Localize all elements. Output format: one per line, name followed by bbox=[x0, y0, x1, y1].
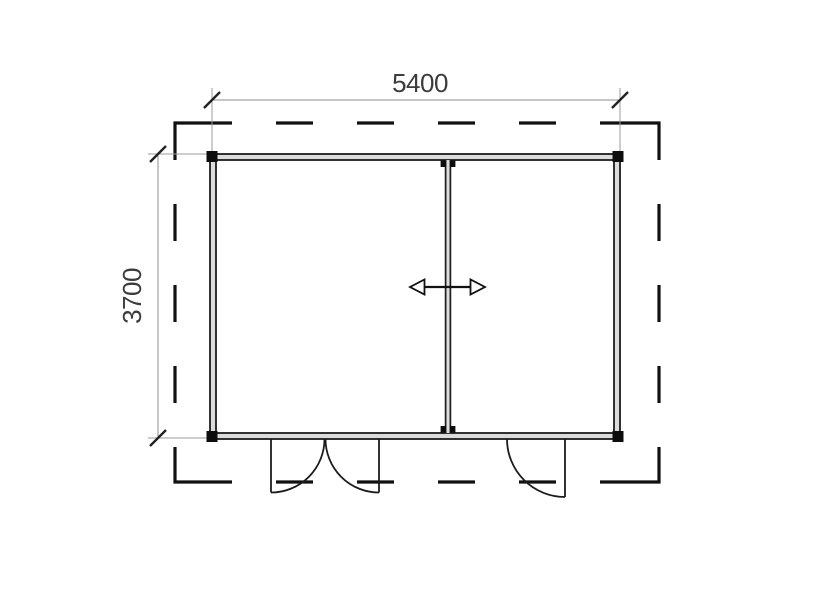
partition-post-bottom-right bbox=[450, 426, 456, 433]
corner-post-bottom-right bbox=[613, 431, 624, 442]
single-door-swing bbox=[507, 439, 565, 497]
partition-post-bottom-left bbox=[441, 426, 447, 433]
corner-post-bottom-left bbox=[207, 431, 218, 442]
arrow-head-left bbox=[410, 280, 425, 295]
wall-band-fill bbox=[210, 154, 620, 439]
corner-post-top-right bbox=[613, 151, 624, 162]
wall-outer-line bbox=[210, 154, 620, 439]
roof-outline-corner-bottom-right bbox=[602, 448, 659, 482]
wall-inner-line bbox=[216, 160, 614, 433]
roof-overhang-outline bbox=[175, 123, 659, 482]
dimension-depth: 3700 bbox=[117, 146, 210, 446]
door-swing-arc-right bbox=[326, 439, 380, 493]
roof-outline-corner-bottom-left bbox=[175, 450, 232, 482]
floor-plan-drawing: 5400 3700 bbox=[0, 0, 828, 614]
double-door-swing bbox=[271, 439, 379, 493]
partition-wall bbox=[441, 160, 456, 433]
dimension-width-label: 5400 bbox=[392, 68, 448, 98]
exterior-walls bbox=[207, 151, 624, 442]
partition-post-top-right bbox=[450, 161, 456, 168]
corner-post-top-left bbox=[207, 151, 218, 162]
dimension-depth-label: 3700 bbox=[117, 268, 147, 324]
floor-plan-canvas: 5400 3700 bbox=[0, 0, 828, 614]
dimension-width: 5400 bbox=[204, 68, 628, 152]
door-swing-arc bbox=[507, 439, 565, 497]
arrow-head-right bbox=[471, 280, 486, 295]
partition-post-top-left bbox=[441, 161, 447, 168]
door-swing-arc-left bbox=[271, 439, 325, 493]
